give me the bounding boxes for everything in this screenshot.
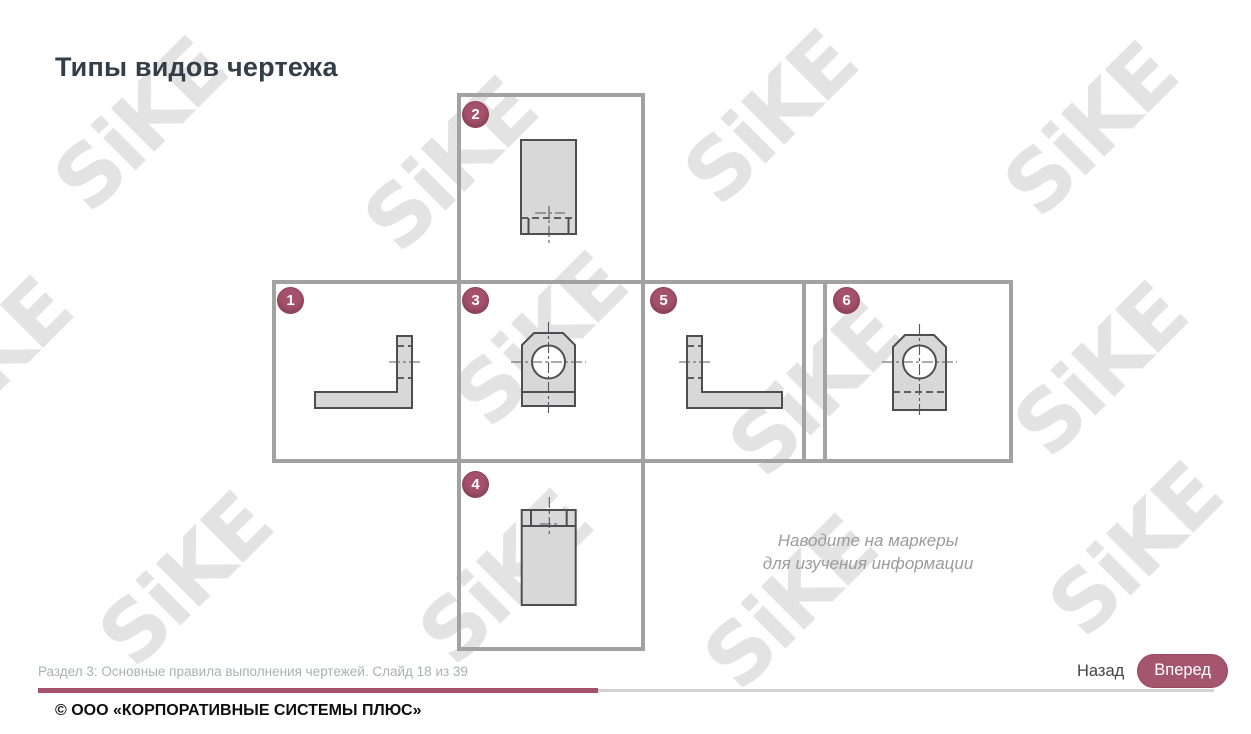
hover-hint-line2: для изучения информации <box>726 552 1010 575</box>
marker-5-label: 5 <box>659 292 667 309</box>
marker-3-label: 3 <box>471 292 479 309</box>
marker-2[interactable]: 2 <box>462 101 489 128</box>
marker-5[interactable]: 5 <box>650 287 677 314</box>
marker-6[interactable]: 6 <box>833 287 860 314</box>
views-column-box <box>457 93 645 651</box>
sike-watermark: SiKE <box>1030 445 1241 656</box>
hover-hint: Наводите на маркеры для изучения информа… <box>726 529 1010 575</box>
hover-hint-line1: Наводите на маркеры <box>726 529 1010 552</box>
marker-6-label: 6 <box>842 292 850 309</box>
page-title: Типы видов чертежа <box>55 52 338 83</box>
row-divider <box>823 280 827 463</box>
slide-status: Раздел 3: Основные правила выполнения че… <box>38 664 468 679</box>
sike-watermark: SiKE <box>80 475 291 686</box>
back-button[interactable]: Назад <box>1077 662 1124 681</box>
marker-3[interactable]: 3 <box>462 287 489 314</box>
marker-2-label: 2 <box>471 106 479 123</box>
marker-4[interactable]: 4 <box>462 471 489 498</box>
sike-watermark: SiKE <box>665 13 876 224</box>
row-divider <box>802 280 806 463</box>
sike-watermark: SiKE <box>0 260 90 471</box>
sike-watermark: SiKE <box>995 265 1206 476</box>
copyright: © ООО «КОРПОРАТИВНЫЕ СИСТЕМЫ ПЛЮС» <box>55 702 422 720</box>
marker-4-label: 4 <box>471 476 479 493</box>
sike-watermark: SiKE <box>985 25 1196 236</box>
slide-stage: SiKE SiKE SiKE SiKE SiKE SiKE SiKE SiKE … <box>0 0 1251 734</box>
slide-nav: Назад Вперед <box>1077 654 1228 688</box>
next-button[interactable]: Вперед <box>1137 654 1228 688</box>
marker-1-label: 1 <box>286 292 294 309</box>
progress-fill <box>38 688 598 693</box>
marker-1[interactable]: 1 <box>277 287 304 314</box>
